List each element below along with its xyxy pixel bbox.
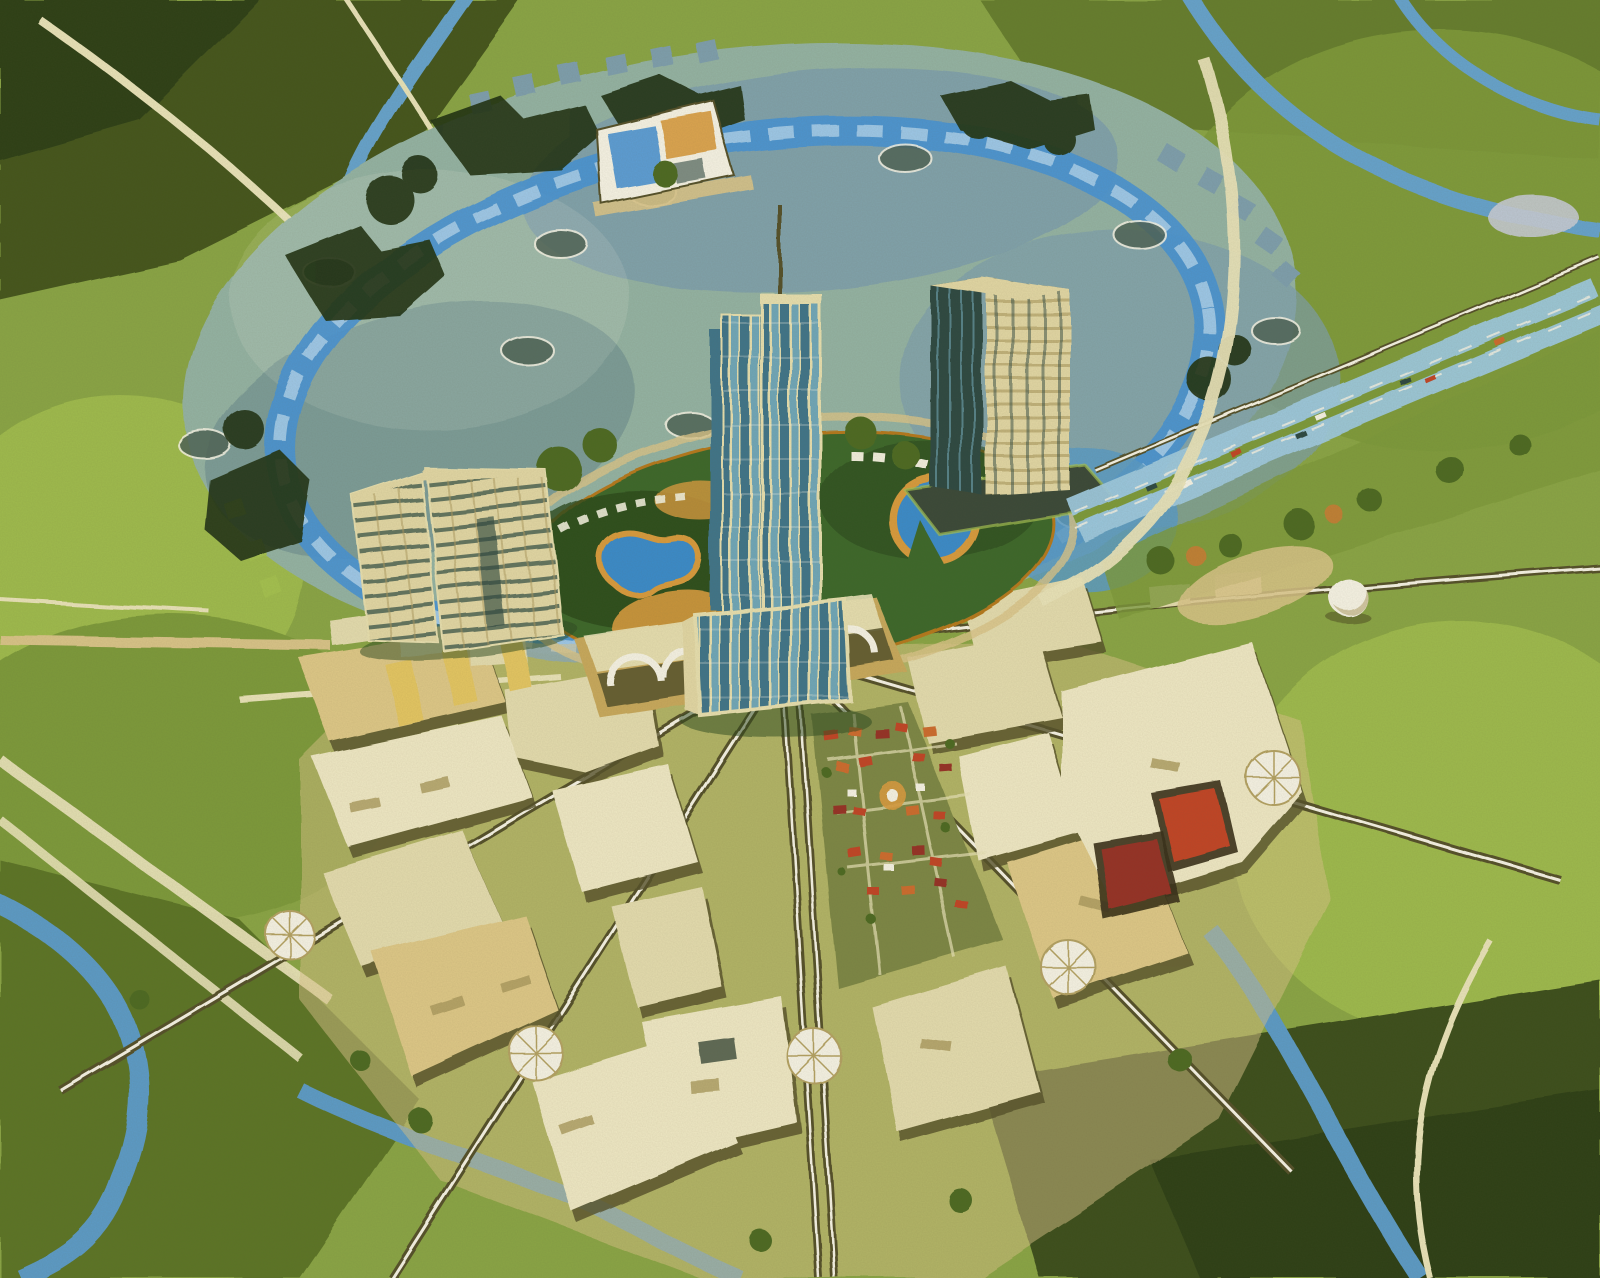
painting-svg — [0, 0, 1600, 1278]
concept-painting — [0, 0, 1600, 1278]
canvas-grain — [0, 0, 1600, 1278]
